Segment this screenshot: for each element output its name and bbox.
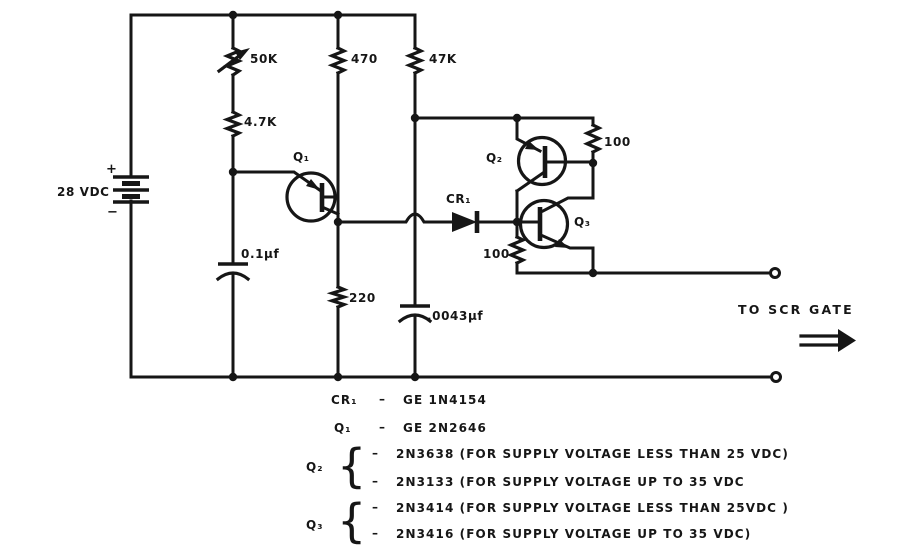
label-r-100-lower: 100 (483, 247, 510, 261)
diode-anode-triangle (452, 212, 477, 232)
label-output: TO SCR GATE (738, 302, 854, 317)
wire-output-line (517, 222, 770, 273)
resistor-zigzag (332, 287, 344, 307)
resistor-zigzag (332, 48, 344, 73)
label-cap-0043uf: .0043µf (427, 309, 483, 323)
junction-dot (229, 373, 237, 381)
junction-dot (589, 159, 597, 167)
parts-brace-q3: { (337, 494, 366, 545)
parts-dash: – (372, 446, 379, 460)
parts-desc-q3-opt2: 2N3416 (FOR SUPPLY VOLTAGE UP TO 35 VDC) (396, 527, 751, 541)
pot-50k (219, 48, 250, 75)
junction-dot (334, 218, 342, 226)
arrow-shaft (801, 336, 838, 345)
junction-dot (229, 168, 237, 176)
label-q3: Q₃ (574, 215, 591, 229)
parts-desc-q2-opt2: 2N3133 (FOR SUPPLY VOLTAGE UP TO 35 VDC (396, 475, 745, 489)
circuit-diagram: 28 VDC + − 50K 4.7K 470 47K Q₁ 0.1µf 220… (0, 0, 917, 545)
label-battery-minus: − (107, 205, 119, 220)
resistor-100-lower (511, 237, 523, 263)
label-cr1: CR₁ (446, 192, 471, 206)
resistor-zigzag (227, 112, 239, 136)
parts-ref-cr1: CR₁ (331, 393, 358, 407)
parts-desc-q3-opt1: 2N3414 (FOR SUPPLY VOLTAGE LESS THAN 25V… (396, 501, 789, 515)
output-terminal-upper (771, 269, 780, 278)
parts-dash: – (379, 420, 386, 434)
resistor-zigzag (511, 237, 523, 263)
resistor-zigzag (587, 125, 599, 152)
junction-dot (334, 11, 342, 19)
label-q2: Q₂ (486, 151, 503, 165)
junction-dot (411, 373, 419, 381)
label-r-4k7: 4.7K (244, 115, 277, 129)
junction-dot (229, 11, 237, 19)
label-battery-plus: + (106, 162, 118, 177)
output-terminal-lower (772, 373, 781, 382)
label-supply: 28 VDC (57, 185, 110, 199)
wire-q3-collector (543, 163, 593, 211)
parts-dash: – (372, 500, 379, 514)
transistor-q3 (521, 201, 570, 249)
parts-ref-q3: Q₃ (306, 518, 324, 532)
wire-q1-emitter (233, 172, 321, 191)
junction-dot (513, 114, 521, 122)
parts-dash: – (379, 392, 386, 406)
label-r-47k: 47K (429, 52, 457, 66)
resistor-220 (332, 287, 344, 307)
parts-ref-q2: Q₂ (306, 460, 324, 474)
wire-b1-to-diode-with-hop (338, 214, 452, 222)
label-r-220: 220 (349, 291, 376, 305)
label-q1: Q₁ (293, 150, 310, 164)
parts-list: CR₁ – GE 1N4154 Q₁ – GE 2N2646 Q₂ { – 2N… (306, 392, 789, 545)
junction-dot (589, 269, 597, 277)
parts-desc-cr1: GE 1N4154 (403, 393, 487, 407)
label-cap-01uf: 0.1µf (241, 247, 279, 261)
junction-dot (411, 114, 419, 122)
parts-dash: – (372, 526, 379, 540)
label-r-470: 470 (351, 52, 378, 66)
wire-q3-emitter (543, 236, 593, 273)
parts-dash: – (372, 474, 379, 488)
schematic-page: 28 VDC + − 50K 4.7K 470 47K Q₁ 0.1µf 220… (0, 0, 917, 545)
junction-dot (334, 373, 342, 381)
junction-dot (513, 218, 521, 226)
resistor-470 (332, 48, 344, 73)
parts-ref-q1: Q₁ (334, 421, 352, 435)
arrow-head (838, 329, 856, 352)
resistor-100-upper (587, 125, 599, 152)
label-pot-50k: 50K (250, 52, 278, 66)
resistor-4k7 (227, 112, 239, 136)
parts-desc-q1: GE 2N2646 (403, 421, 487, 435)
scr-gate-arrow-icon (801, 329, 856, 352)
resistor-zigzag (409, 48, 421, 73)
diode-cr1 (452, 211, 477, 233)
battery-symbol (113, 177, 149, 202)
resistor-47k (409, 48, 421, 73)
parts-brace-q2: { (337, 439, 366, 493)
label-r-100-upper: 100 (604, 135, 631, 149)
parts-desc-q2-opt1: 2N3638 (FOR SUPPLY VOLTAGE LESS THAN 25 … (396, 447, 789, 461)
